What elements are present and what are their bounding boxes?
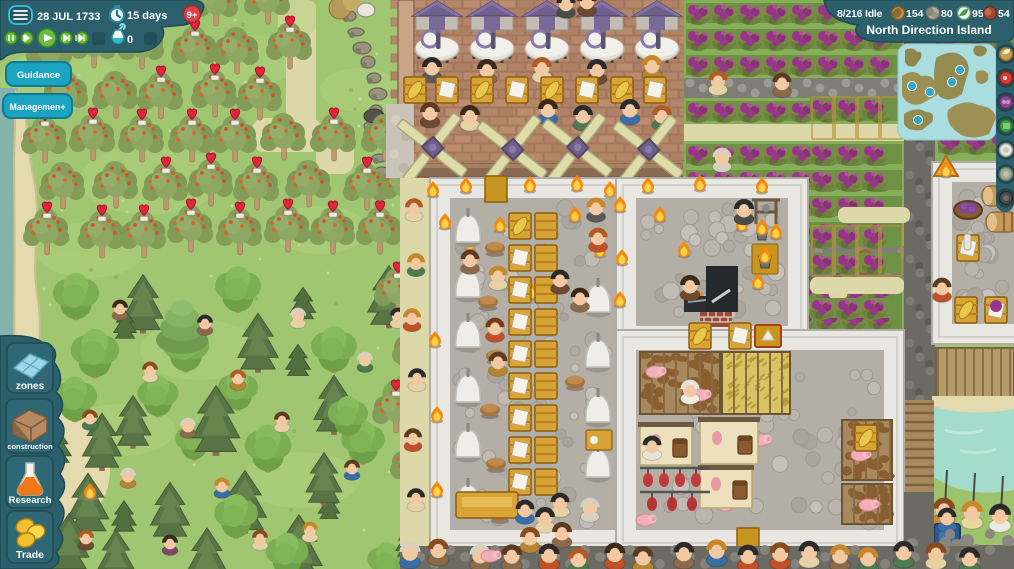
svg-text:80: 80 xyxy=(941,8,953,20)
svg-text:Trade: Trade xyxy=(16,549,44,561)
svg-text:Research: Research xyxy=(9,495,52,506)
svg-text:Managemen+: Managemen+ xyxy=(10,102,66,112)
svg-text:8/216 Idle: 8/216 Idle xyxy=(837,8,883,20)
svg-text:15 days: 15 days xyxy=(127,10,167,22)
svg-text:54: 54 xyxy=(998,8,1010,20)
svg-text:0: 0 xyxy=(127,34,133,46)
svg-text:154: 154 xyxy=(906,8,924,20)
svg-text:Guidance: Guidance xyxy=(17,70,60,81)
svg-text:95: 95 xyxy=(972,8,984,20)
svg-text:28 JUL 1733: 28 JUL 1733 xyxy=(37,11,100,23)
svg-text:zones: zones xyxy=(16,381,45,392)
svg-text:North Direction Island: North Direction Island xyxy=(866,23,991,37)
svg-text:construction: construction xyxy=(7,442,53,451)
svg-text:9+: 9+ xyxy=(187,10,198,21)
